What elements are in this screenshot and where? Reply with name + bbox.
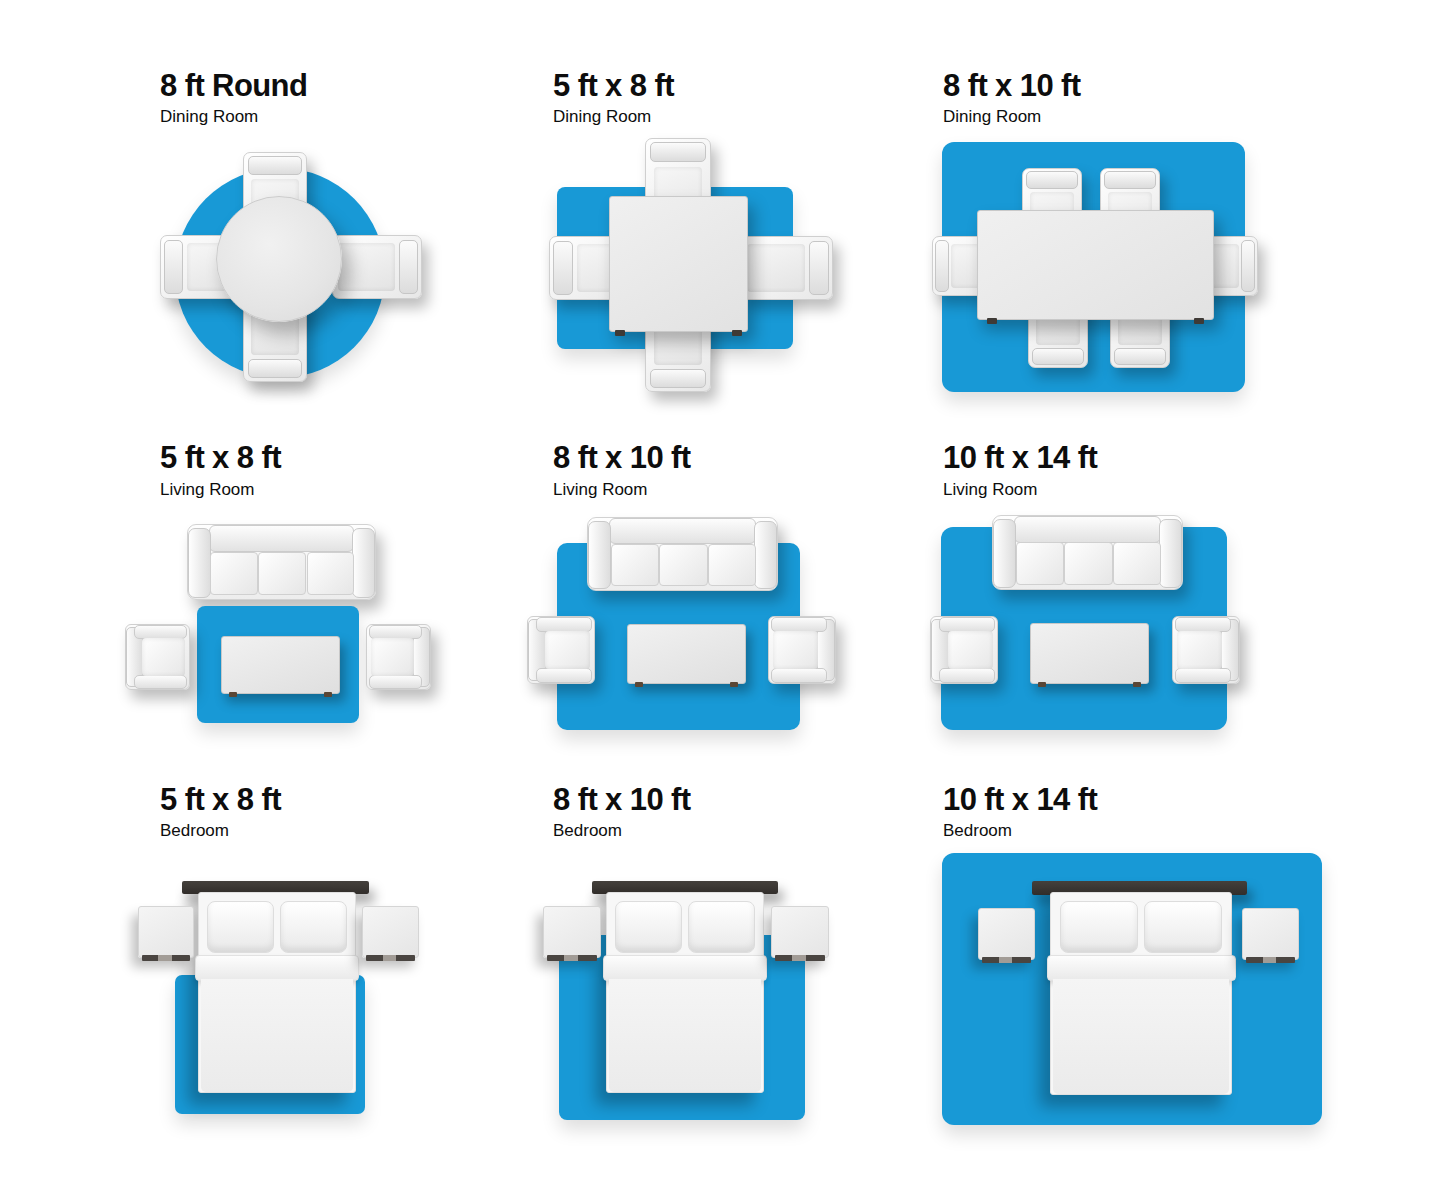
round-dining-table bbox=[216, 196, 342, 322]
panel-title: 8 ft x 10 ft bbox=[943, 70, 1081, 103]
sofa-cushion bbox=[210, 552, 258, 596]
sofa-cushion bbox=[307, 552, 355, 596]
bed bbox=[1050, 892, 1232, 1095]
sofa-arm-left bbox=[188, 528, 211, 598]
panel-title: 10 ft x 14 ft bbox=[943, 784, 1097, 817]
armchair-left bbox=[527, 616, 595, 684]
long-dining-table bbox=[977, 210, 1214, 320]
pillow bbox=[207, 901, 275, 953]
armchair-arm bbox=[369, 675, 423, 689]
armchair-arm bbox=[536, 617, 592, 632]
armchair-arm bbox=[134, 625, 188, 639]
sofa bbox=[187, 524, 376, 600]
armchair-right bbox=[1172, 616, 1240, 684]
pillow bbox=[615, 901, 683, 953]
sofa-cushion bbox=[1064, 542, 1112, 585]
panel-subtitle: Dining Room bbox=[943, 108, 1041, 127]
armchair-right bbox=[768, 616, 836, 684]
armchair-seat bbox=[142, 638, 185, 675]
sofa-arm-right bbox=[1159, 519, 1182, 588]
pillow bbox=[688, 901, 756, 953]
panel-title: 5 ft x 8 ft bbox=[553, 70, 674, 103]
panel-subtitle: Bedroom bbox=[943, 822, 1012, 841]
nightstand-left bbox=[543, 906, 601, 958]
armchair-arm bbox=[771, 617, 827, 632]
sofa-back bbox=[609, 518, 756, 544]
square-dining-table bbox=[609, 196, 748, 332]
coffee-table bbox=[627, 624, 746, 684]
duvet bbox=[1053, 979, 1229, 1094]
armchair-seat bbox=[545, 631, 590, 669]
panel-title: 8 ft Round bbox=[160, 70, 307, 103]
duvet bbox=[201, 979, 354, 1092]
sofa-back bbox=[209, 525, 355, 552]
panel-subtitle: Bedroom bbox=[553, 822, 622, 841]
bed bbox=[198, 892, 356, 1093]
pillow bbox=[280, 901, 348, 953]
armchair-arm bbox=[1175, 617, 1231, 632]
nightstand-right bbox=[362, 906, 419, 958]
coffee-table bbox=[221, 636, 340, 694]
armchair-arm bbox=[536, 668, 592, 683]
sofa-arm-left bbox=[993, 519, 1016, 588]
armchair-seat bbox=[948, 631, 993, 669]
panel-subtitle: Bedroom bbox=[160, 822, 229, 841]
armchair-arm bbox=[771, 668, 827, 683]
panel-title: 5 ft x 8 ft bbox=[160, 784, 281, 817]
armchair-arm bbox=[1175, 668, 1231, 683]
sofa-cushion bbox=[708, 544, 756, 587]
sofa-cushion bbox=[1016, 542, 1064, 585]
sofa-cushion bbox=[611, 544, 659, 587]
sofa bbox=[992, 515, 1183, 590]
armchair-left bbox=[125, 624, 190, 690]
nightstand-left bbox=[138, 906, 194, 958]
coffee-table bbox=[1030, 623, 1149, 684]
panel-subtitle: Living Room bbox=[943, 481, 1038, 500]
armchair-arm bbox=[939, 617, 995, 632]
panel-subtitle: Living Room bbox=[160, 481, 255, 500]
armchair-seat bbox=[773, 631, 818, 669]
rug-size-guide-infographic: 8 ft Round Dining Room 5 ft x 8 ft Dinin… bbox=[0, 0, 1430, 1200]
armchair-arm bbox=[134, 675, 188, 689]
sofa-cushion bbox=[1113, 542, 1161, 585]
nightstand-left bbox=[978, 908, 1035, 960]
nightstand-right bbox=[1242, 908, 1299, 960]
sofa-cushion bbox=[659, 544, 707, 587]
blanket-fold bbox=[1047, 955, 1236, 981]
duvet bbox=[609, 979, 762, 1092]
blanket-fold bbox=[603, 955, 767, 981]
panel-title: 8 ft x 10 ft bbox=[553, 784, 691, 817]
panel-subtitle: Living Room bbox=[553, 481, 648, 500]
panel-title: 8 ft x 10 ft bbox=[553, 442, 691, 475]
armchair-arm bbox=[369, 625, 423, 639]
armchair-seat bbox=[1177, 631, 1222, 669]
dining-chair-right bbox=[741, 236, 833, 300]
sofa-arm-left bbox=[588, 521, 611, 589]
sofa-arm-right bbox=[754, 521, 777, 589]
bed bbox=[606, 892, 764, 1093]
panel-subtitle: Dining Room bbox=[160, 108, 258, 127]
armchair-left bbox=[930, 616, 998, 684]
sofa bbox=[587, 517, 778, 591]
armchair-seat bbox=[371, 638, 414, 675]
sofa-back bbox=[1014, 516, 1161, 543]
armchair-right bbox=[366, 624, 431, 690]
blanket-fold bbox=[195, 955, 359, 981]
sofa-arm-right bbox=[352, 528, 375, 598]
pillow bbox=[1060, 901, 1138, 953]
pillow bbox=[1144, 901, 1222, 953]
panel-title: 10 ft x 14 ft bbox=[943, 442, 1097, 475]
armchair-arm bbox=[939, 668, 995, 683]
sofa-cushion bbox=[258, 552, 306, 596]
panel-title: 5 ft x 8 ft bbox=[160, 442, 281, 475]
dining-chair-right bbox=[332, 235, 422, 299]
nightstand-right bbox=[771, 906, 829, 958]
panel-subtitle: Dining Room bbox=[553, 108, 651, 127]
